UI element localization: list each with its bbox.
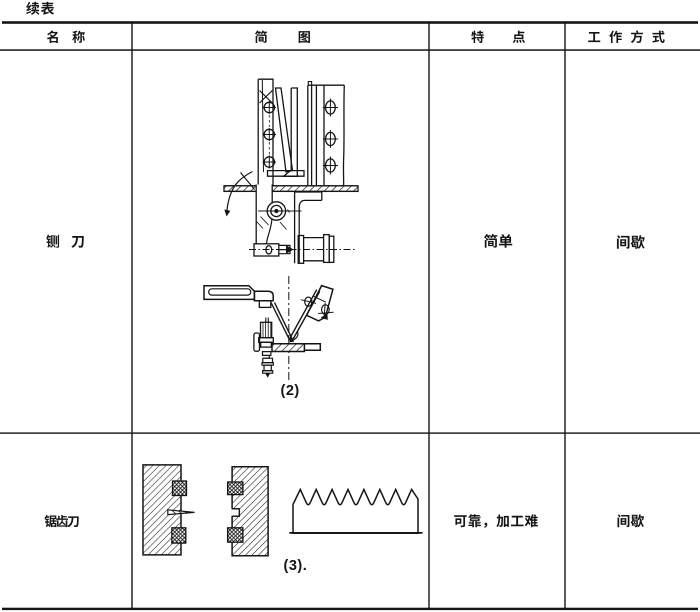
svg-text:(3).: (3). (284, 558, 308, 574)
svg-text:(2): (2) (281, 383, 300, 399)
